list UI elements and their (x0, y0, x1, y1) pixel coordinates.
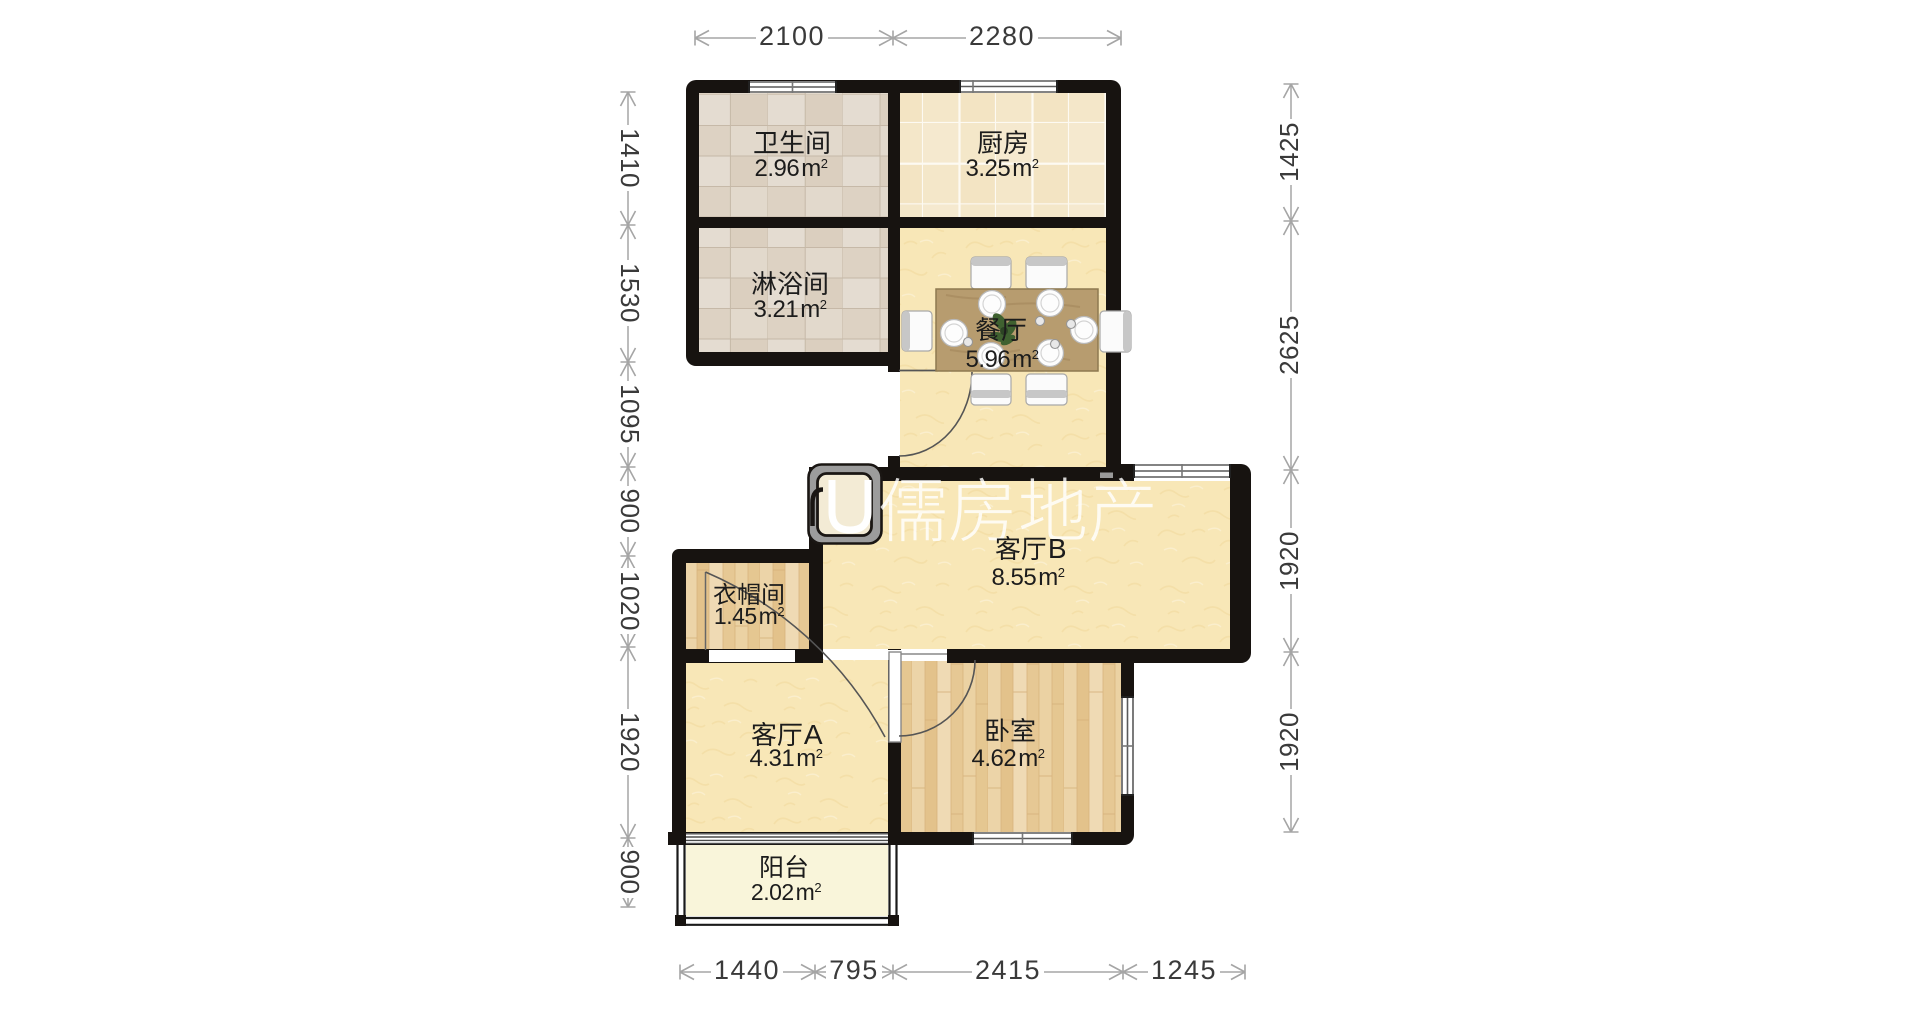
svg-text:1095: 1095 (615, 384, 645, 444)
svg-text:B: B (1048, 533, 1067, 564)
svg-text:3.21m2: 3.21m2 (754, 296, 827, 323)
svg-text:1.45m2: 1.45m2 (714, 603, 784, 629)
svg-text:3.25m2: 3.25m2 (966, 155, 1039, 182)
svg-text:1530: 1530 (615, 263, 645, 323)
svg-text:2100: 2100 (759, 21, 825, 51)
svg-text:4.31m2: 4.31m2 (750, 745, 823, 772)
svg-text:900: 900 (615, 489, 645, 534)
svg-text:1425: 1425 (1274, 122, 1304, 182)
svg-text:1020: 1020 (615, 571, 645, 631)
svg-text:1410: 1410 (615, 128, 645, 188)
svg-text:795: 795 (829, 955, 879, 985)
svg-text:1920: 1920 (615, 712, 645, 772)
svg-text:2.02m2: 2.02m2 (751, 879, 821, 905)
svg-text:2.96m2: 2.96m2 (755, 155, 828, 182)
svg-text:4.62m2: 4.62m2 (972, 745, 1045, 772)
svg-text:1245: 1245 (1151, 955, 1217, 985)
svg-text:1440: 1440 (714, 955, 780, 985)
svg-text:2280: 2280 (969, 21, 1035, 51)
svg-text:2415: 2415 (975, 955, 1041, 985)
svg-text:5.96m2: 5.96m2 (966, 346, 1039, 373)
svg-text:8.55m2: 8.55m2 (992, 564, 1065, 591)
svg-text:2625: 2625 (1274, 315, 1304, 375)
svg-text:1920: 1920 (1274, 531, 1304, 591)
svg-text:1920: 1920 (1274, 712, 1304, 772)
svg-text:900: 900 (615, 850, 645, 895)
